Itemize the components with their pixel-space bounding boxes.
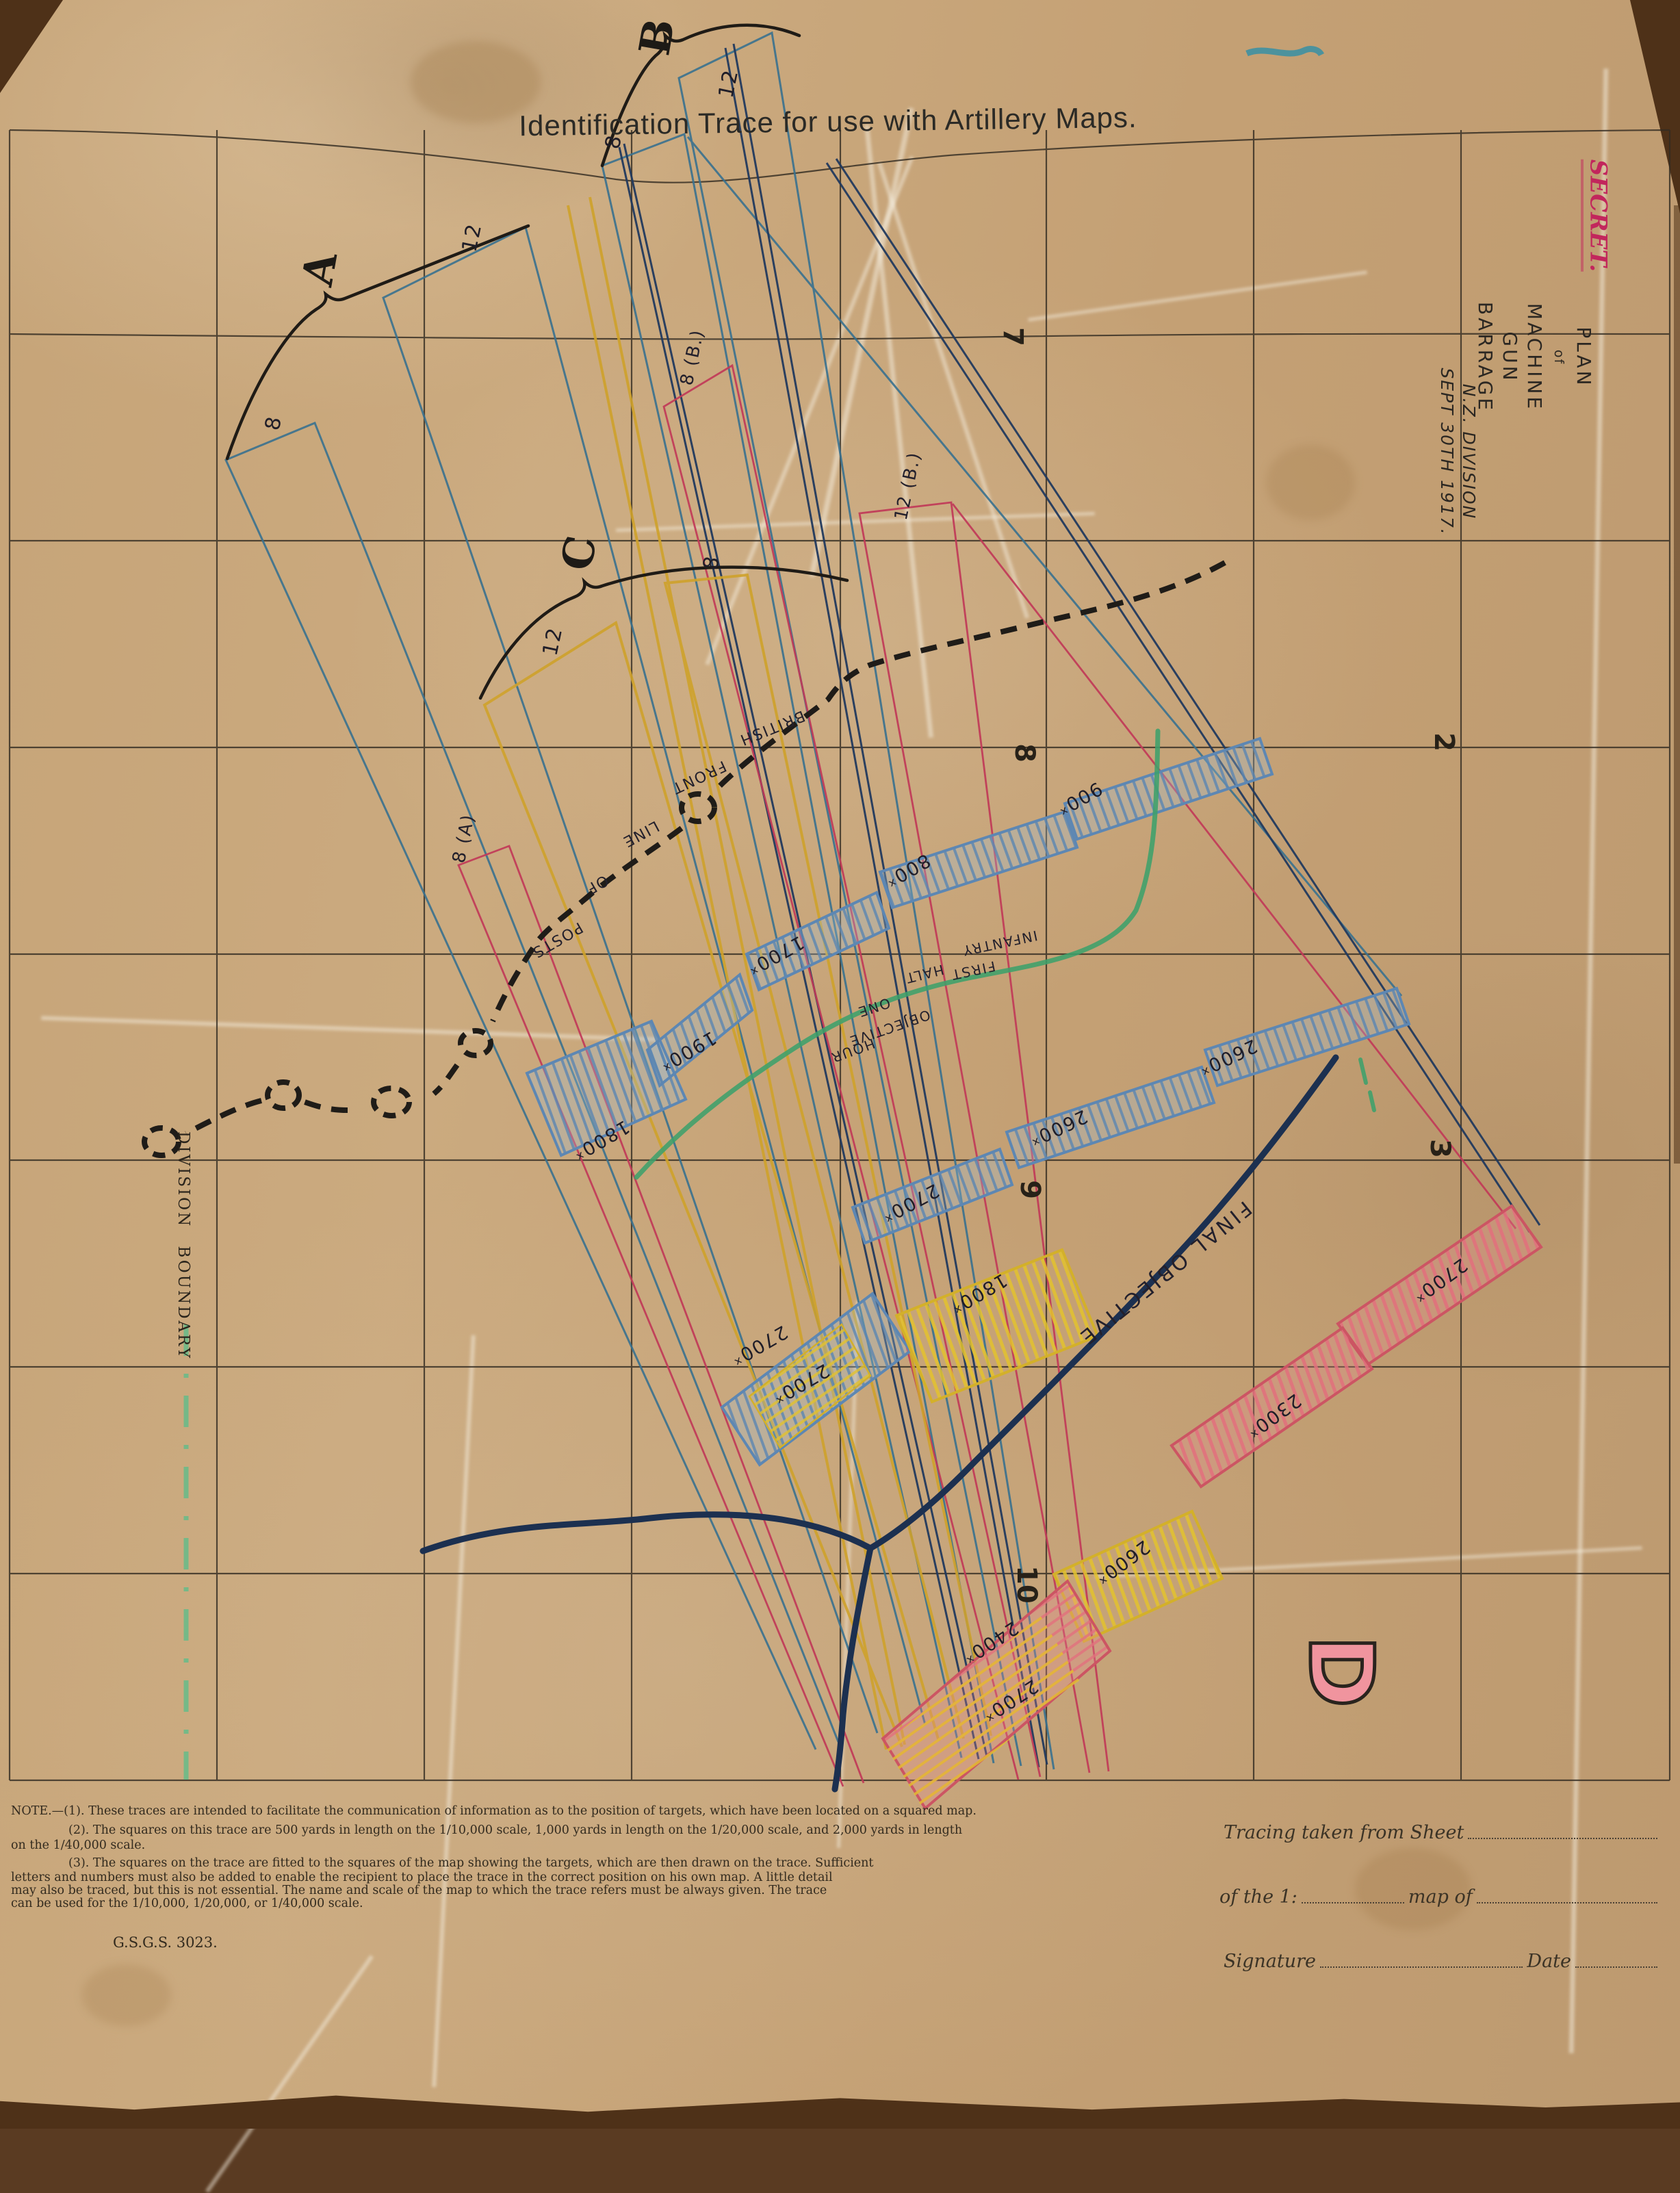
grid-number-8: 8 [1009, 743, 1040, 762]
note-line-7: can be used for the 1/10,000, 1/20,000, … [11, 1897, 363, 1910]
sector-letter-d: D [1289, 1635, 1391, 1708]
plan-line-3: MACHINE GUN BARRAGE [1473, 285, 1547, 431]
division-date-block: N.Z. DIVISION SEPT 30TH 1917. [1436, 368, 1479, 535]
note-line-2: (2). The squares on this trace are 500 y… [68, 1823, 962, 1837]
form-label-sheet: Tracing taken from Sheet [1224, 1822, 1464, 1843]
dotted-rule [1477, 1901, 1657, 1903]
plan-title-block: PLAN of MACHINE GUN BARRAGE [1473, 285, 1596, 431]
pencil-scribble [1247, 49, 1321, 55]
plan-date: SEPT 30TH 1917. [1436, 368, 1458, 535]
form-label-date: Date [1527, 1951, 1571, 1972]
grid-number-7: 7 [997, 327, 1029, 346]
barrage-band-yellow [749, 1250, 1222, 1641]
note-line-3: on the 1/40,000 scale. [11, 1838, 145, 1852]
dotted-rule [1468, 1837, 1657, 1839]
scanned-artillery-trace: { "title": "Identification Trace for use… [0, 0, 1680, 2129]
grid-number-9: 9 [1014, 1180, 1046, 1199]
classification-stamp: SECRET. [1581, 159, 1612, 272]
dotted-rule [1575, 1966, 1657, 1968]
note-line-5: letters and numbers must also be added t… [11, 1871, 833, 1884]
final-objective-line [423, 1057, 1336, 1789]
dotted-rule [1320, 1966, 1523, 1968]
grid-number-3: 3 [1424, 1139, 1456, 1158]
note-line-1: NOTE.—(1). These traces are intended to … [11, 1804, 977, 1818]
grid-number-10: 10 [1011, 1565, 1042, 1604]
dotted-rule [1302, 1901, 1404, 1903]
form-label-scale: of the 1: [1219, 1886, 1297, 1908]
form-row-signature: Signature Date [1224, 1951, 1662, 1972]
division-boundary-label: DIVISION BOUNDARY [175, 1131, 192, 1360]
form-row-sheet: Tracing taken from Sheet [1224, 1822, 1662, 1843]
fire-lanes-navy [619, 44, 1540, 1767]
form-label-mapof: map of [1408, 1886, 1473, 1908]
form-row-scale: of the 1: map of [1219, 1886, 1662, 1908]
note-line-4: (3). The squares on the trace are fitted… [68, 1856, 873, 1870]
plan-line-1: PLAN [1571, 285, 1596, 431]
form-label-signature: Signature [1224, 1951, 1316, 1972]
fire-lanes-blue [226, 33, 1401, 1769]
gsgs-number: G.S.G.S. 3023. [113, 1934, 218, 1951]
plan-line-2: of [1547, 285, 1571, 431]
division-name: N.Z. DIVISION [1458, 368, 1479, 535]
grid-number-2: 2 [1428, 732, 1460, 752]
note-line-6: may also be traced, but this is not esse… [11, 1884, 827, 1897]
